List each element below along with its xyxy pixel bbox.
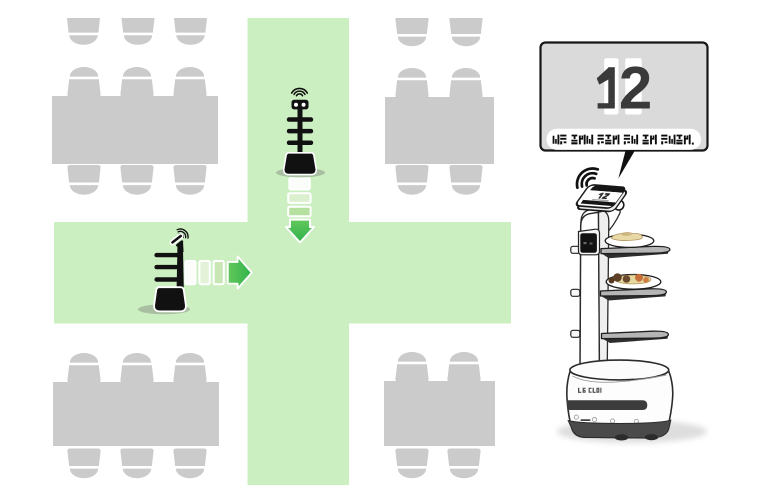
- svg-text:2: 2: [619, 55, 652, 122]
